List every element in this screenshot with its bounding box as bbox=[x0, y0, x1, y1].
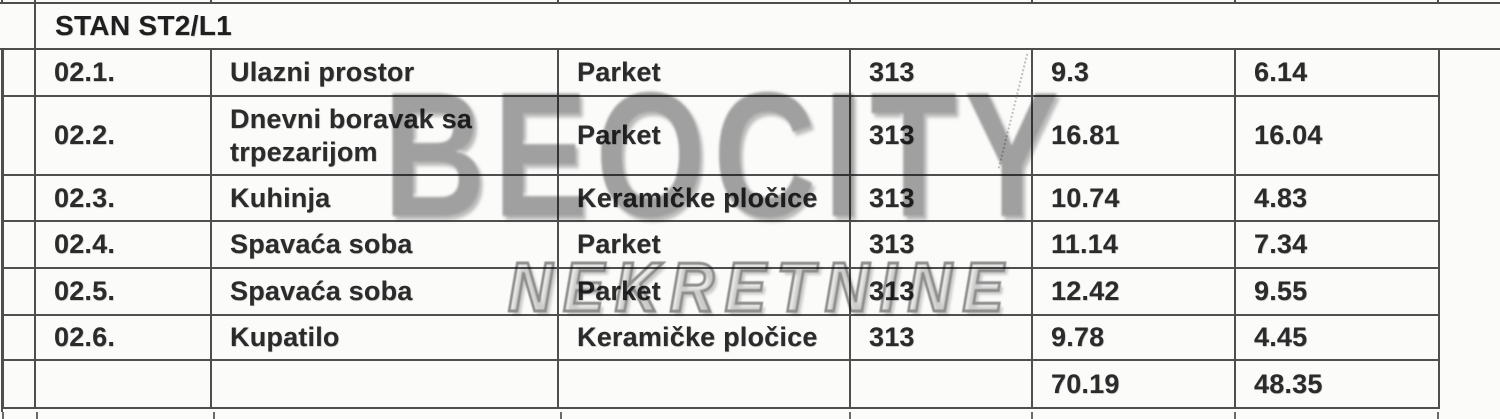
cell-room-number: 02.5. bbox=[35, 268, 211, 315]
cell-area: 9.78 bbox=[1032, 315, 1235, 360]
cell-room-number: 02.3. bbox=[35, 175, 211, 221]
cell-room-name: Kupatilo bbox=[211, 315, 558, 360]
table-row: 02.6. Kupatilo Keramičke pločice 313 9.7… bbox=[3, 315, 1439, 360]
scanned-apartment-area-table: STAN ST2/L1 02.1. Ulazni prostor Parket … bbox=[0, 0, 1500, 419]
column-divider-tick bbox=[2, 412, 4, 419]
cell-floor-type: Keramičke pločice bbox=[558, 175, 850, 221]
table-row: 02.3. Kuhinja Keramičke pločice 313 10.7… bbox=[3, 175, 1439, 221]
column-divider-tick bbox=[849, 412, 851, 419]
cell-room-name: Kuhinja bbox=[211, 175, 558, 221]
cell-room-name-empty bbox=[211, 360, 558, 408]
row-spacer-cell bbox=[3, 50, 35, 96]
cell-area: 11.14 bbox=[1032, 221, 1235, 268]
cell-area-2: 16.04 bbox=[1235, 96, 1439, 175]
cell-room-name: Spavaća soba bbox=[211, 268, 558, 315]
cell-code: 313 bbox=[850, 221, 1032, 268]
table-row: 02.5. Spavaća soba Parket 313 12.42 9.55 bbox=[3, 268, 1439, 315]
cell-code-empty bbox=[850, 360, 1032, 408]
apartment-header-row: STAN ST2/L1 bbox=[0, 4, 1500, 48]
cell-area-2: 6.14 bbox=[1235, 50, 1439, 96]
column-divider-tick bbox=[210, 0, 212, 2]
row-spacer-cell bbox=[3, 268, 35, 315]
cell-area-2: 7.34 bbox=[1235, 221, 1439, 268]
room-area-table: 02.1. Ulazni prostor Parket 313 9.3 6.14… bbox=[2, 50, 1440, 409]
cell-area: 12.42 bbox=[1032, 268, 1235, 315]
column-divider-tick bbox=[557, 0, 559, 2]
row-spacer-cell bbox=[3, 360, 35, 408]
cell-floor-type: Parket bbox=[558, 268, 850, 315]
column-divider-tick bbox=[560, 412, 562, 419]
cell-room-name: Dnevni boravak sa trpezarijom bbox=[211, 96, 558, 175]
cell-code: 313 bbox=[850, 315, 1032, 360]
column-divider-tick bbox=[36, 412, 38, 419]
table-row: 02.2. Dnevni boravak sa trpezarijom Park… bbox=[3, 96, 1439, 175]
column-divider-tick bbox=[34, 4, 36, 48]
table-row: 02.4. Spavaća soba Parket 313 11.14 7.34 bbox=[3, 221, 1439, 268]
cell-total-area: 70.19 bbox=[1032, 360, 1235, 408]
cell-room-name: Spavaća soba bbox=[211, 221, 558, 268]
apartment-title: STAN ST2/L1 bbox=[55, 4, 232, 48]
cell-floor-type: Keramičke pločice bbox=[558, 315, 850, 360]
cell-code: 313 bbox=[850, 268, 1032, 315]
cell-room-number: 02.1. bbox=[35, 50, 211, 96]
column-divider-tick bbox=[1437, 412, 1439, 419]
cell-area-2: 4.45 bbox=[1235, 315, 1439, 360]
cell-total-area-2: 48.35 bbox=[1235, 360, 1439, 408]
totals-row: 70.19 48.35 bbox=[3, 360, 1439, 408]
cell-area-2: 9.55 bbox=[1235, 268, 1439, 315]
cell-area: 9.3 bbox=[1032, 50, 1235, 96]
cell-room-number: 02.6. bbox=[35, 315, 211, 360]
row-spacer-cell bbox=[3, 96, 35, 175]
row-spacer-cell bbox=[3, 221, 35, 268]
cell-room-name: Ulazni prostor bbox=[211, 50, 558, 96]
cell-room-number-empty bbox=[35, 360, 211, 408]
table-row: 02.1. Ulazni prostor Parket 313 9.3 6.14 bbox=[3, 50, 1439, 96]
column-divider-tick bbox=[1437, 0, 1439, 2]
column-divider-tick bbox=[213, 412, 215, 419]
column-divider-tick bbox=[1031, 412, 1033, 419]
cell-room-number: 02.2. bbox=[35, 96, 211, 175]
cell-code: 313 bbox=[850, 96, 1032, 175]
cell-floor-type: Parket bbox=[558, 96, 850, 175]
column-divider-tick bbox=[1031, 0, 1033, 2]
cell-room-number: 02.4. bbox=[35, 221, 211, 268]
cell-floor-type-empty bbox=[558, 360, 850, 408]
cell-area-2: 4.83 bbox=[1235, 175, 1439, 221]
cropped-row-bottom bbox=[0, 412, 1500, 419]
column-divider-tick bbox=[849, 0, 851, 2]
column-divider-tick bbox=[34, 0, 36, 2]
cell-code: 313 bbox=[850, 175, 1032, 221]
cell-code: 313 bbox=[850, 50, 1032, 96]
cell-floor-type: Parket bbox=[558, 50, 850, 96]
cell-floor-type: Parket bbox=[558, 221, 850, 268]
row-spacer-cell bbox=[3, 315, 35, 360]
column-divider-tick bbox=[1234, 0, 1236, 2]
cell-area: 16.81 bbox=[1032, 96, 1235, 175]
column-divider-tick bbox=[1234, 412, 1236, 419]
cell-area: 10.74 bbox=[1032, 175, 1235, 221]
row-spacer-cell bbox=[3, 175, 35, 221]
